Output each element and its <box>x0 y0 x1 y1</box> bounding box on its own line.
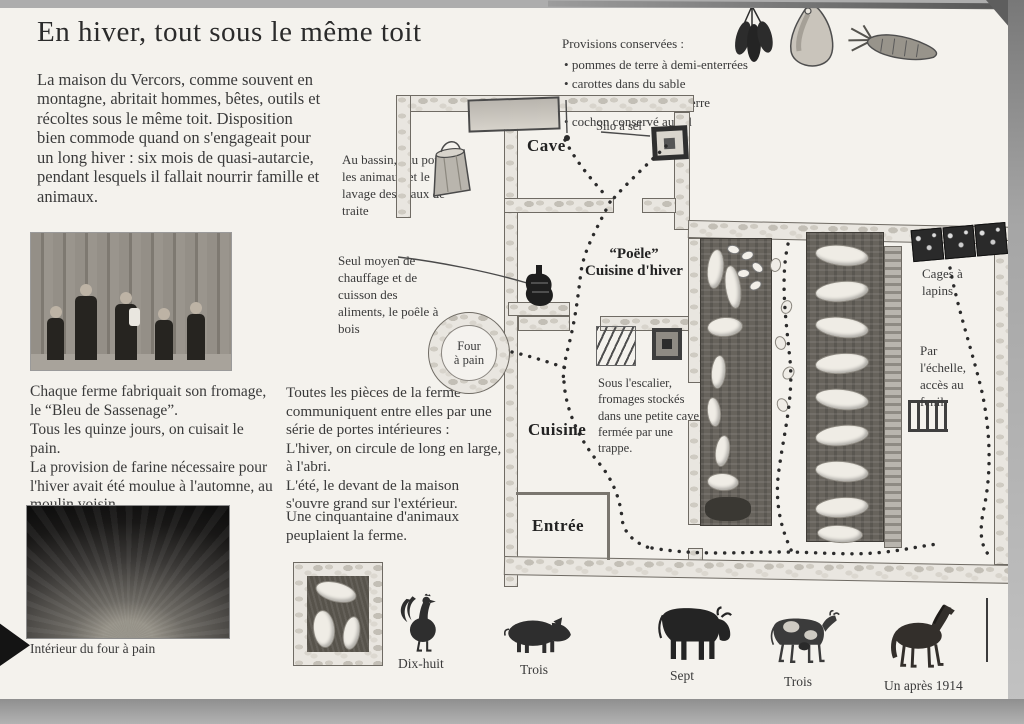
dotted-path <box>563 202 610 382</box>
dotted-path <box>512 352 566 368</box>
dotted-path <box>565 140 606 196</box>
sausages-icon <box>732 4 775 63</box>
scan-edge-right <box>1008 0 1024 724</box>
stove-icon <box>526 265 553 306</box>
horse-count-label: Un après 1914 <box>884 678 963 694</box>
dotted-path <box>614 146 666 198</box>
bucket-icon <box>434 142 470 196</box>
bull-count-label: Sept <box>670 668 694 684</box>
pig-illustration <box>498 608 574 660</box>
leader-stove <box>398 257 527 283</box>
panel-scan: En hiver, tout sous le même toit La mais… <box>0 0 1024 724</box>
leader-silo <box>601 132 650 136</box>
dotted-path <box>652 544 938 554</box>
scan-edge-bottom <box>0 699 1024 724</box>
horse-illustration <box>880 596 960 672</box>
ham-icon <box>791 5 833 66</box>
scan-scratch <box>986 598 988 662</box>
leader-provisions <box>566 100 567 133</box>
leader-dot <box>564 135 570 141</box>
rooster-illustration <box>396 592 448 654</box>
pig-count-label: Trois <box>520 662 548 678</box>
bull-illustration <box>648 598 732 664</box>
cow-illustration <box>762 610 840 668</box>
rooster-count-label: Dix-huit <box>398 656 444 672</box>
carrot-icon <box>847 24 938 61</box>
cow-count-label: Trois <box>784 674 812 690</box>
dotted-path <box>777 244 792 552</box>
dotted-path <box>950 268 992 558</box>
dotted-path <box>564 382 650 548</box>
